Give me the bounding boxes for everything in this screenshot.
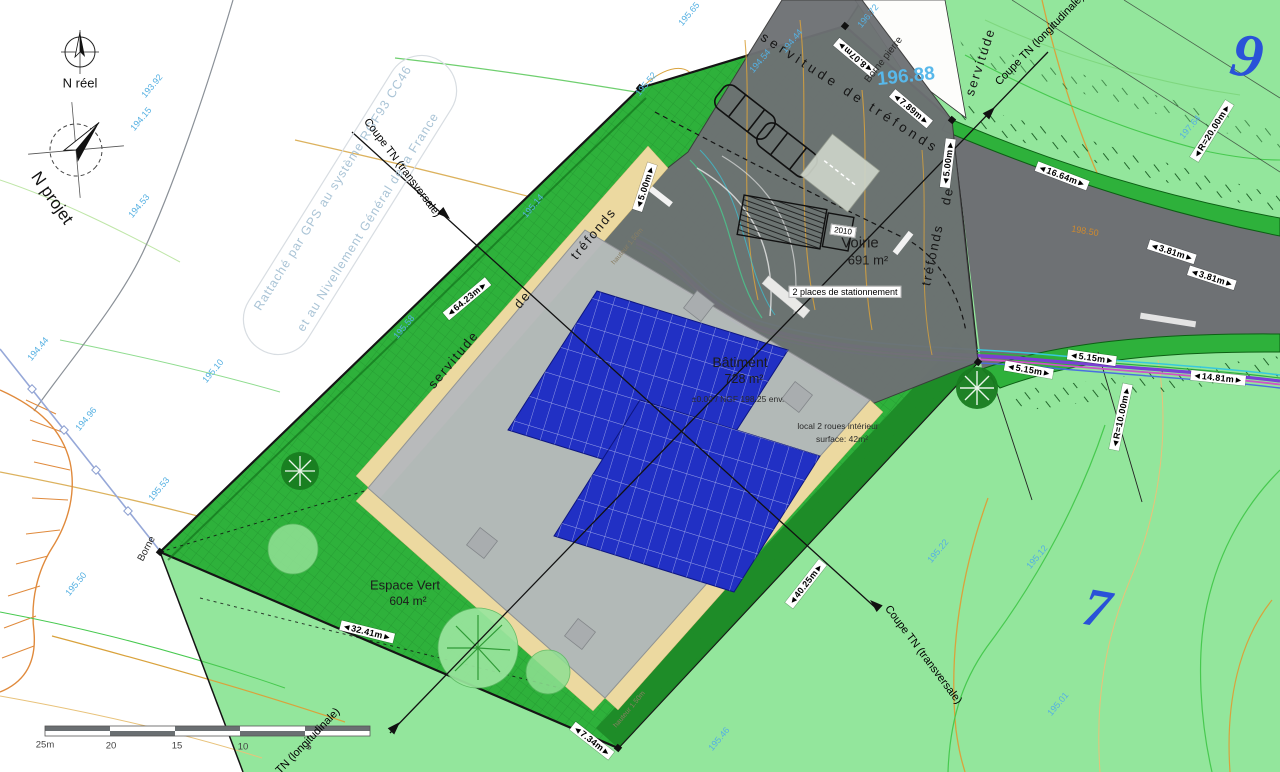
site-plan-page: ◄8.07m►◄7.89m►◄5.00m►◄5.00m►◄16.64m►◄3.8… xyxy=(0,0,1280,772)
scale-bar xyxy=(45,726,370,736)
site-plan-drawing xyxy=(0,0,1280,772)
tree-star-2 xyxy=(956,367,998,409)
tree-star-1 xyxy=(281,452,319,490)
